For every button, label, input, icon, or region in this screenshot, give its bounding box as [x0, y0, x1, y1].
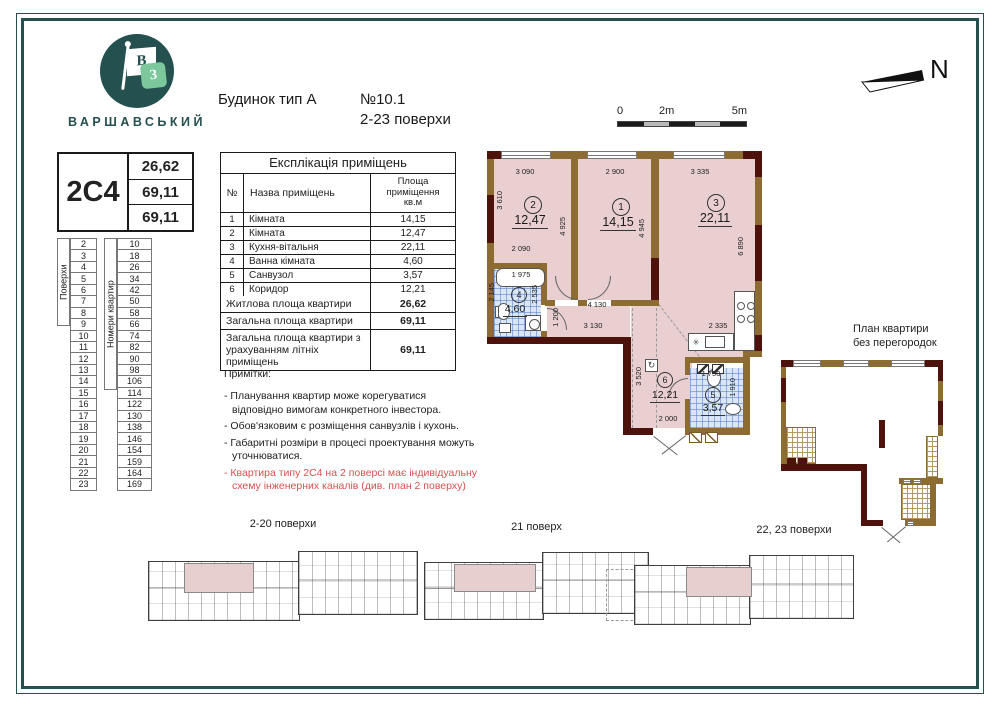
key-plan-floors-2-20: 2-20 поверхи	[148, 518, 418, 627]
window	[673, 151, 725, 159]
dim-label: 4 130	[571, 300, 623, 309]
wall-segment	[781, 360, 793, 367]
brand-name: ВАРШАВСЬКИЙ	[58, 115, 216, 129]
highlighted-apartment	[686, 567, 752, 597]
room-area: 12,21	[371, 283, 455, 296]
dim-label: 2 000	[645, 414, 691, 423]
explication-row: 5Санвузол3,57	[221, 269, 455, 283]
wall-segment	[743, 351, 762, 357]
wall-segment	[821, 360, 843, 367]
scale-bar: 0 2m 5m	[617, 105, 747, 127]
wall-segment	[487, 337, 631, 344]
wall-segment	[781, 464, 867, 471]
room-name: Кімната	[244, 213, 371, 226]
north-label: N	[930, 54, 949, 85]
summary-value: 26,62	[370, 296, 455, 312]
scale-bar-segments	[617, 121, 747, 127]
scale-label-2m: 2m	[659, 105, 674, 117]
room-area: 3,57	[371, 269, 455, 282]
dim-label: 2 090	[497, 244, 545, 253]
room-area-2: 12,47	[508, 213, 552, 227]
column-name: Назва приміщень	[244, 174, 371, 212]
dim-label: 3 335	[670, 167, 730, 176]
note-item: - Обов'язковим є розміщення санвузлів і …	[224, 420, 480, 433]
wall-segment	[861, 471, 867, 524]
wall-segment	[487, 195, 494, 243]
floor-cell: 23	[70, 478, 97, 490]
wall-segment	[861, 520, 883, 526]
column-no: №	[221, 174, 244, 212]
room-no: 4	[221, 255, 244, 268]
apartment-type-card: 2С4 26,62 69,11 69,11	[57, 152, 194, 232]
shaft-box	[689, 432, 702, 443]
appliance-icon: ✳	[689, 335, 703, 349]
note-item: - Планування квартир може корегуватися в…	[224, 390, 480, 417]
plan-no-partitions: План квартири без перегородок	[781, 320, 951, 535]
dim-label: 1 975	[499, 270, 543, 279]
explication-row: 1Кімната14,15	[221, 213, 455, 227]
wall-segment	[631, 428, 653, 435]
dim-label: 3 130	[567, 321, 619, 330]
window	[913, 479, 921, 484]
wall-segment	[938, 381, 943, 401]
room-no: 3	[221, 241, 244, 254]
room-name: Кімната	[244, 227, 371, 240]
room-area: 4,60	[371, 255, 455, 268]
apartment-type: 2С4	[59, 154, 129, 230]
entry-door-leaf	[653, 436, 677, 455]
dim-label: 6 890	[736, 237, 745, 256]
apartment-number-cell: 169	[117, 478, 152, 490]
fan-icon: ↻	[645, 359, 658, 372]
wall-segment	[725, 151, 743, 159]
developer-logo: В З ВАРШАВСЬКИЙ	[58, 34, 216, 129]
explication-header-row: № Назва приміщень Площа приміщення кв.м	[221, 174, 455, 213]
floors-column: 234567891011121314151617181920212223	[70, 238, 97, 491]
dim-label: 4 925	[558, 217, 567, 236]
window	[903, 479, 911, 484]
wall-segment	[781, 378, 786, 402]
room-number-4: 4	[511, 287, 527, 303]
summary-label: Загальна площа квартири	[221, 313, 370, 329]
building-type: Будинок тип А	[218, 91, 317, 108]
highlighted-apartment	[454, 564, 536, 592]
shaft-box	[705, 432, 718, 443]
wall-segment	[743, 357, 750, 435]
dim-label: 1 910	[728, 378, 737, 397]
wall-segment	[869, 360, 891, 367]
room-number-3: 3	[707, 194, 725, 212]
explication-table: Експлікація приміщень № Назва приміщень …	[220, 152, 456, 371]
dim-label: 2 145	[487, 283, 496, 302]
summary-value: 69,11	[370, 313, 455, 329]
bath-sink	[499, 323, 511, 333]
floors-column-header: Поверхи	[57, 238, 70, 326]
wall-segment	[487, 159, 494, 195]
window	[843, 360, 869, 367]
note-warning: - Квартира типу 2С4 на 2 поверсі має інд…	[224, 467, 480, 494]
dashed-line	[632, 308, 633, 428]
washing-machine	[525, 315, 541, 331]
notes-title: Примітки:	[224, 368, 480, 381]
wall-segment	[755, 177, 762, 225]
wall-segment	[925, 360, 943, 367]
kitchen-sink	[705, 336, 725, 348]
wall-segment	[931, 484, 936, 524]
room-number-2: 2	[524, 196, 542, 214]
explication-rows: 1Кімната14,152Кімната12,473Кухня-вітальн…	[221, 213, 455, 296]
wall-segment	[651, 158, 659, 258]
wall-segment	[781, 402, 786, 471]
card-total-area-summer: 69,11	[129, 205, 192, 230]
floors-range: 2-23 поверхи	[360, 111, 451, 128]
wall-segment	[487, 151, 501, 159]
wall-segment	[879, 420, 885, 448]
room-name: Коридор	[244, 283, 371, 296]
room-area: 12,47	[371, 227, 455, 240]
wall-segment	[755, 159, 762, 177]
wall-segment	[743, 151, 762, 159]
summary-row-total-summer: Загальна площа квартири з урахуванням лі…	[221, 330, 455, 370]
explication-row: 4Ванна кімната4,60	[221, 255, 455, 269]
dim-label: 2 535	[530, 285, 539, 304]
wall-segment	[938, 367, 943, 381]
dim-label: 3 090	[495, 167, 555, 176]
room-no: 6	[221, 283, 244, 296]
wall-segment	[541, 331, 547, 337]
scale-label-5m: 5m	[732, 105, 747, 117]
apartments-column: 1018263442505866748290981061141221301381…	[117, 238, 152, 491]
wall-segment	[623, 344, 631, 435]
room-number-6: 6	[657, 372, 673, 388]
summary-row-living: Житлова площа квартири 26,62	[221, 296, 455, 313]
room-area-1: 14,15	[596, 215, 640, 229]
dim-label: 2 900	[585, 167, 645, 176]
summary-value: 69,11	[370, 330, 455, 370]
room-number-1: 1	[612, 198, 630, 216]
apartments-column-header: Номери квартир	[104, 238, 117, 390]
room-area: 22,11	[371, 241, 455, 254]
note-item: - Габаритні розміри в процесі проектуван…	[224, 437, 480, 464]
explication-row: 2Кімната12,47	[221, 227, 455, 241]
wall-segment	[755, 281, 762, 337]
dim-label: 2 335	[695, 321, 741, 330]
dim-label: 3 520	[634, 367, 643, 386]
room-no: 1	[221, 213, 244, 226]
room-name: Ванна кімната	[244, 255, 371, 268]
scale-label-0: 0	[617, 105, 623, 117]
summary-label: Загальна площа квартири з урахуванням лі…	[221, 330, 370, 370]
wall-segment	[787, 458, 796, 464]
room-area: 14,15	[371, 213, 455, 226]
explication-title: Експлікація приміщень	[221, 153, 455, 174]
plan-no-partitions-title: План квартири без перегородок	[853, 322, 937, 351]
explication-row: 6Коридор12,21	[221, 283, 455, 296]
plan-sheet: В З ВАРШАВСЬКИЙ Будинок тип А №10.1 2-23…	[0, 0, 1000, 707]
room-area-5: 3,57	[695, 402, 731, 414]
column-area: Площа приміщення кв.м	[371, 174, 455, 212]
wall-segment	[685, 363, 690, 375]
key-plan-label: 22, 23 поверхи	[634, 524, 854, 538]
wall-segment	[755, 225, 762, 281]
room-number-5: 5	[705, 387, 721, 403]
north-arrow-icon	[860, 58, 928, 96]
window	[587, 151, 637, 159]
hatched-shaft	[926, 436, 938, 478]
wall-segment	[938, 401, 943, 425]
key-plan-drawing	[148, 545, 418, 627]
room-no: 5	[221, 269, 244, 282]
dim-label: 1 750	[693, 369, 729, 378]
room-no: 2	[221, 227, 244, 240]
highlighted-apartment	[184, 563, 254, 593]
window	[793, 360, 821, 367]
window	[501, 151, 551, 159]
wall-segment	[781, 367, 786, 378]
window	[891, 360, 925, 367]
wall-segment	[938, 425, 943, 436]
summary-label: Житлова площа квартири	[221, 296, 370, 312]
room-area-3: 22,11	[693, 211, 737, 225]
apartment-number: №10.1	[360, 91, 405, 108]
main-floor-plan: 3 090 2 900 3 335 3 610 4 925 4 945 6 89…	[485, 145, 777, 467]
wall-segment	[651, 258, 659, 303]
explication-row: 3Кухня-вітальня22,11	[221, 241, 455, 255]
wall-segment	[551, 151, 587, 159]
logo-flag-icon: В З	[100, 34, 174, 108]
dim-label: 1 200	[551, 308, 560, 327]
room-area-4: 4,60	[497, 303, 533, 315]
key-plan-floors-22-23: 22, 23 поверхи	[634, 524, 854, 633]
hatched-shaft	[901, 484, 931, 520]
card-total-area: 69,11	[129, 180, 192, 206]
room-name: Кухня-вітальня	[244, 241, 371, 254]
window	[907, 521, 914, 526]
wall-segment	[798, 458, 807, 464]
dim-label: 3 610	[495, 191, 504, 210]
room-area-6: 12,21	[643, 389, 687, 401]
key-plan-label: 2-20 поверхи	[148, 518, 418, 532]
wall-segment	[685, 357, 743, 363]
key-plan-label: 21 поверх	[424, 521, 649, 535]
notes-block: Примітки: - Планування квартир може коре…	[224, 368, 480, 497]
card-living-area: 26,62	[129, 154, 192, 180]
key-plan-drawing	[634, 551, 854, 633]
room-name: Санвузол	[244, 269, 371, 282]
summary-row-total: Загальна площа квартири 69,11	[221, 313, 455, 330]
logo-green-square-icon: З	[140, 62, 167, 89]
floors-apartments-table: Поверхи 23456789101112131415161718192021…	[57, 238, 157, 518]
